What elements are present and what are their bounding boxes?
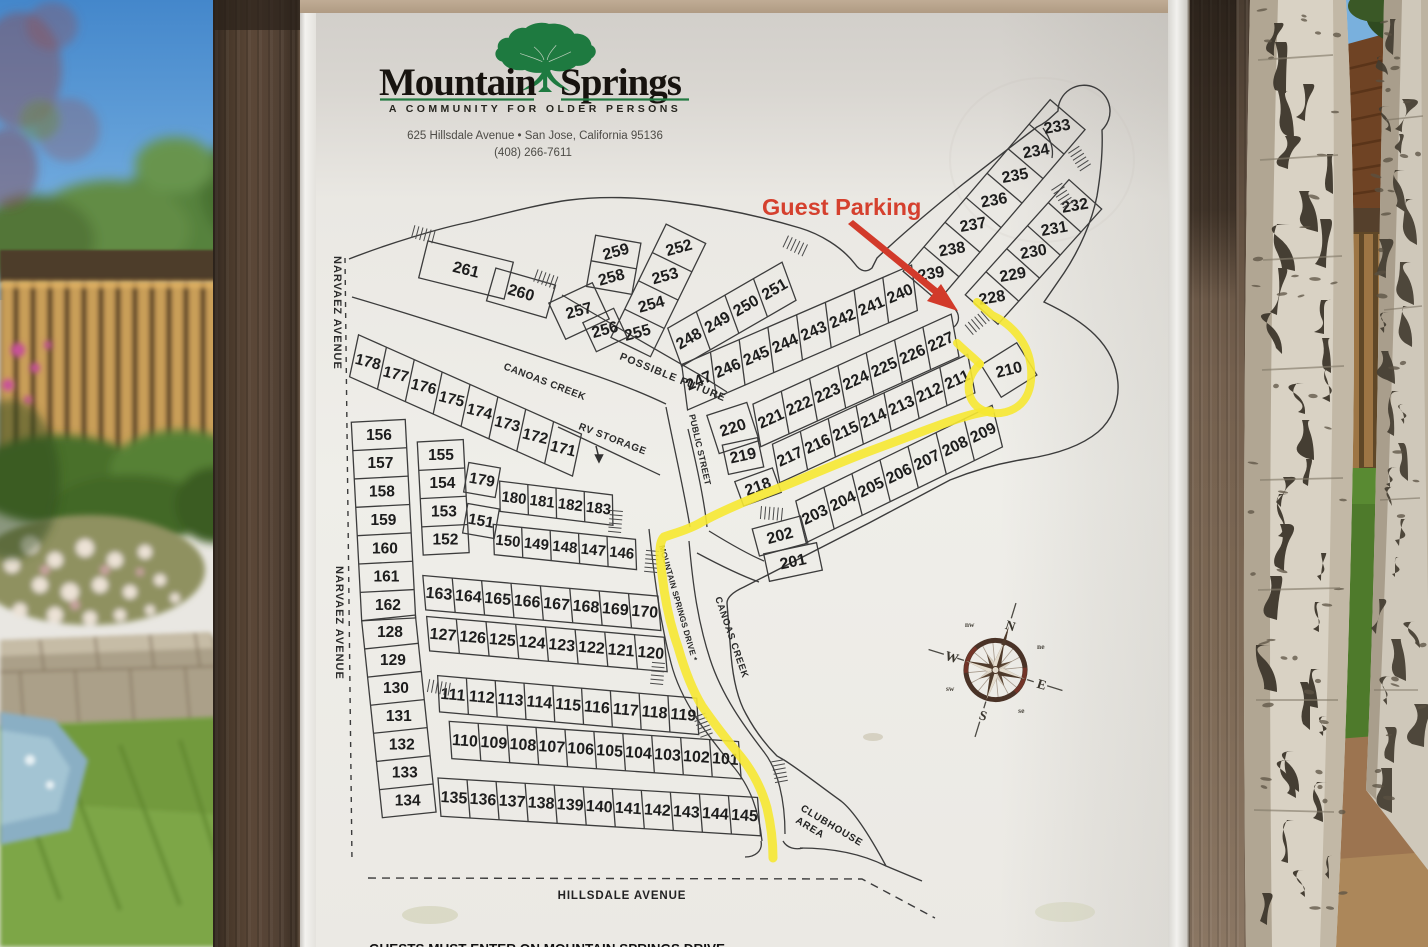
svg-text:163: 163 — [425, 585, 453, 604]
svg-text:139: 139 — [556, 796, 584, 815]
svg-text:117: 117 — [612, 701, 639, 720]
svg-text:Springs: Springs — [560, 61, 682, 104]
svg-text:136: 136 — [469, 791, 497, 810]
svg-text:104: 104 — [625, 744, 653, 763]
svg-text:Mountain: Mountain — [379, 61, 537, 104]
svg-text:128: 128 — [377, 624, 403, 641]
svg-text:157: 157 — [368, 455, 394, 472]
svg-text:109: 109 — [480, 734, 508, 753]
svg-text:112: 112 — [468, 688, 495, 707]
svg-text:135: 135 — [440, 789, 468, 808]
svg-text:120: 120 — [637, 644, 665, 663]
svg-text:625 Hillsdale Avenue • San Jos: 625 Hillsdale Avenue • San Jose, Califor… — [407, 130, 663, 142]
svg-text:115: 115 — [555, 696, 582, 715]
svg-text:159: 159 — [371, 512, 397, 529]
svg-text:124: 124 — [518, 633, 546, 652]
svg-text:162: 162 — [375, 597, 401, 614]
svg-text:133: 133 — [392, 765, 418, 782]
svg-text:168: 168 — [572, 598, 600, 617]
svg-text:155: 155 — [428, 447, 454, 464]
svg-text:180: 180 — [501, 488, 528, 508]
svg-text:ne: ne — [1037, 642, 1045, 651]
svg-text:127: 127 — [429, 626, 457, 645]
svg-text:140: 140 — [585, 798, 613, 817]
svg-text:106: 106 — [567, 740, 595, 759]
svg-text:150: 150 — [495, 532, 522, 552]
svg-text:137: 137 — [498, 793, 526, 812]
svg-text:143: 143 — [673, 803, 701, 822]
svg-text:160: 160 — [372, 540, 398, 557]
svg-text:103: 103 — [654, 746, 682, 765]
svg-text:GUESTS MUST ENTER ON MOUNTAIN: GUESTS MUST ENTER ON MOUNTAIN SPRINGS DR… — [369, 942, 725, 947]
svg-text:167: 167 — [542, 595, 570, 614]
svg-text:129: 129 — [380, 652, 406, 669]
svg-text:145: 145 — [731, 807, 759, 826]
svg-text:119: 119 — [670, 706, 697, 725]
svg-text:123: 123 — [548, 636, 576, 655]
svg-text:164: 164 — [454, 587, 482, 606]
svg-text:144: 144 — [702, 805, 730, 824]
svg-text:102: 102 — [683, 748, 711, 767]
svg-text:152: 152 — [433, 532, 459, 549]
svg-text:113: 113 — [497, 691, 524, 710]
svg-text:182: 182 — [557, 495, 584, 515]
svg-text:169: 169 — [601, 600, 629, 619]
svg-text:183: 183 — [585, 499, 612, 519]
svg-text:154: 154 — [430, 475, 456, 492]
svg-text:sw: sw — [946, 684, 955, 693]
svg-text:142: 142 — [643, 801, 671, 820]
svg-text:158: 158 — [369, 484, 395, 501]
svg-text:118: 118 — [641, 703, 668, 722]
svg-text:161: 161 — [373, 569, 399, 586]
svg-text:Guest Parking: Guest Parking — [762, 194, 921, 220]
svg-text:132: 132 — [389, 736, 415, 753]
svg-text:131: 131 — [386, 708, 412, 725]
svg-text:(408) 266-7611: (408) 266-7611 — [494, 147, 572, 159]
svg-text:134: 134 — [395, 793, 421, 810]
svg-text:146: 146 — [608, 543, 635, 563]
svg-text:153: 153 — [431, 503, 457, 520]
svg-text:107: 107 — [538, 738, 566, 757]
svg-text:NARVAEZ AVENUE: NARVAEZ AVENUE — [331, 256, 343, 370]
svg-text:108: 108 — [509, 736, 537, 755]
svg-text:147: 147 — [580, 541, 607, 561]
svg-text:HILLSDALE AVENUE: HILLSDALE AVENUE — [558, 890, 687, 902]
svg-text:NARVAEZ AVENUE: NARVAEZ AVENUE — [333, 566, 345, 680]
svg-text:181: 181 — [529, 492, 556, 512]
svg-text:149: 149 — [523, 535, 550, 555]
svg-text:170: 170 — [631, 603, 659, 622]
svg-text:111: 111 — [440, 686, 466, 705]
svg-text:110: 110 — [452, 732, 479, 751]
svg-text:165: 165 — [484, 590, 512, 609]
svg-text:nw: nw — [965, 620, 975, 629]
svg-text:A COMMUNITY FOR OLDER PERSONS: A COMMUNITY FOR OLDER PERSONS — [389, 103, 681, 115]
svg-text:141: 141 — [614, 800, 642, 819]
svg-text:105: 105 — [596, 742, 624, 761]
svg-text:114: 114 — [526, 693, 553, 712]
svg-text:116: 116 — [583, 698, 610, 717]
svg-text:138: 138 — [527, 794, 555, 813]
svg-text:126: 126 — [459, 628, 487, 647]
svg-text:130: 130 — [383, 680, 409, 697]
svg-text:148: 148 — [552, 538, 579, 558]
svg-text:122: 122 — [577, 639, 605, 658]
svg-text:121: 121 — [607, 641, 635, 660]
svg-text:se: se — [1018, 706, 1025, 715]
svg-text:125: 125 — [488, 631, 516, 650]
svg-text:156: 156 — [366, 427, 392, 444]
svg-text:166: 166 — [513, 592, 541, 611]
